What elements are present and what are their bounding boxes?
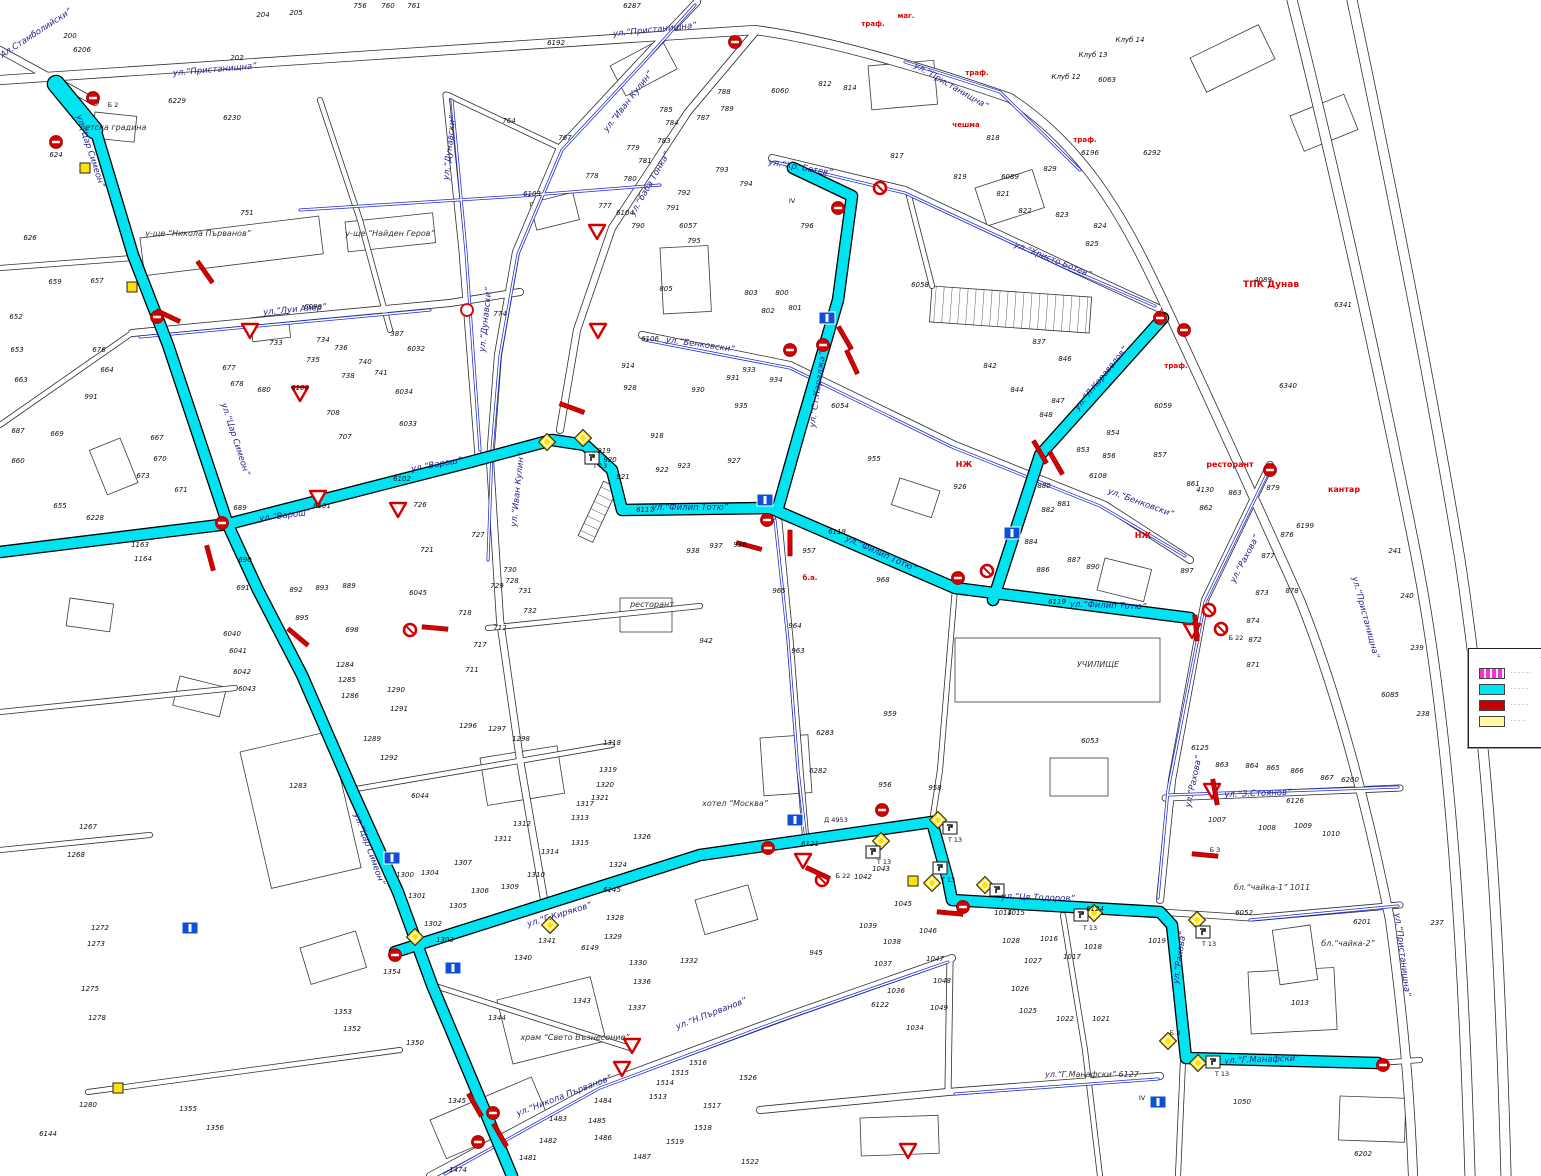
parcel-number: 1314 [541,848,559,856]
parcel-number: 919 [597,447,611,455]
sign-caption: Т 13 [940,876,955,884]
parcel-number: 652 [9,313,23,321]
parcel-number: 968 [876,576,890,584]
parcel-number: 780 [623,175,637,183]
parcel-number: 4130 [1196,486,1214,494]
parcel-number: 6192 [547,39,565,47]
parcel-number: 1481 [519,1154,537,1162]
parcel-number: 880 [1037,482,1051,490]
parcel-number: 6054 [831,402,849,410]
parcel-number: 893 [315,584,328,592]
no-stopping-sign-icon [874,182,886,194]
sign-caption: Б 2 [108,101,119,109]
parcel-number: 6052 [1235,909,1253,917]
parcel-number: 1526 [739,1074,757,1082]
parcel-number: 882 [1041,506,1055,514]
parcel-number: 6287 [623,2,641,10]
parcel-number: 200 [63,32,77,40]
poi-label-red: б.а. [803,574,818,582]
parcel-number: 756 [353,2,367,10]
parcel-number: 1017 [1063,953,1081,961]
poi-label-red: кантар [1328,485,1360,494]
parcel-number: 956 [878,781,892,789]
sign-caption: Т 13 [1214,1070,1229,1078]
parcel-number: 1028 [1002,937,1020,945]
parcel-number: 1337 [628,1004,646,1012]
parcel-number: 678 [230,380,244,388]
parcel-number: 671 [174,486,187,494]
parcel-number: 942 [699,637,713,645]
parcel-number: 717 [473,641,487,649]
parcel-number: 991 [84,393,97,401]
legend-item-label: ······· [1511,702,1529,708]
parcel-number: 886 [1036,566,1050,574]
parcel-number: 847 [1051,397,1065,405]
yield-sign-icon [795,854,811,868]
parcel-number: 761 [407,2,420,10]
parcel-number: 1350 [406,1039,424,1047]
legend-item-label: ······· [1511,686,1529,692]
parcel-number: 821 [996,190,1009,198]
parcel-number: 6144 [39,1130,57,1138]
parcel-number: 928 [623,384,637,392]
parcel-number: 6108 [1089,472,1107,480]
parcel-number: 6122 [871,1001,889,1009]
parcel-number: 6229 [168,97,186,105]
parcel-number: 726 [413,501,427,509]
parcel-number: 238 [1416,710,1430,718]
parcel-number: 819 [953,173,967,181]
parcel-number: 660 [11,457,25,465]
parcel-number: 890 [1086,563,1100,571]
parcel-number: 237 [1430,919,1444,927]
info-sign-icon [787,814,803,826]
yield-sign-icon [390,503,406,517]
parcel-number: 795 [687,237,701,245]
parcel-number: 1516 [689,1059,707,1067]
poi-label-red: чешма [952,121,980,129]
poi-label-red: траф. [965,69,988,77]
area-label: ул.“Г.Манафски” 6127 [1044,1070,1140,1079]
parcel-number: 1043 [872,865,890,873]
parcel-number: 664 [100,366,113,374]
parcel-number: 6230 [223,114,241,122]
area-label: УЧИЛИЩЕ [1077,660,1120,669]
parcel-number: 778 [585,172,599,180]
parcel-number: 663 [14,376,27,384]
parcel-number: 848 [1039,411,1053,419]
parcel-number: 1163 [131,541,149,549]
parcel-number: 718 [458,609,472,617]
sign-caption: Т 13 [592,462,607,470]
no-entry-sign-icon [472,1136,485,1149]
parcel-number: 6089 [1001,173,1019,181]
legend-item-cyan: ······· [1479,681,1541,697]
parcel-number: 1515 [671,1069,689,1077]
parcel-number: 1285 [338,676,356,684]
parcel-number: 1326 [633,833,651,841]
parcel-number: 872 [1248,636,1262,644]
parcel-number: 6102 [393,475,411,483]
parcel-number: 774 [493,310,506,318]
parcel-number: 963 [791,647,804,655]
parcel-number: 1021 [1092,1015,1110,1023]
parcel-number: 6053 [1081,737,1099,745]
legend-swatch-pale-yellow-icon [1479,716,1505,727]
parcel-number: 781 [638,157,651,165]
parcel-number: 957 [802,547,816,555]
street-name-label: ул.“Н.Първанов” [674,996,749,1033]
parcel-number: 1513 [649,1093,667,1101]
no-stopping-sign-icon [1215,623,1227,635]
no-entry-sign-icon [729,36,742,49]
parcel-number: 1310 [527,871,545,879]
parcel-number: 6202 [1354,1150,1372,1158]
parcel-number: 1482 [539,1137,557,1145]
parcel-number: 825 [1085,240,1099,248]
parcel-number: 1025 [1019,1007,1037,1015]
parcel-number: 792 [677,189,691,197]
parcel-number: 873 [1255,589,1268,597]
parcel-number: 931 [726,374,739,382]
roadblock-bar-icon [788,530,792,556]
legend-item-magenta-striped: ········ [1479,665,1541,681]
parcel-number: 205 [289,9,303,17]
sign-caption: Б 22 [836,872,851,880]
parcel-number: 824 [1093,222,1106,230]
parcel-number: 6063 [1098,76,1116,84]
parcel-number: 6340 [1279,382,1297,390]
parcel-number: 1319 [599,766,617,774]
legend-items: ···························· [1479,665,1541,729]
street-name-label: ул.“Филип Тотю” [1069,600,1147,613]
poi-label-red: НЖ [1135,531,1152,540]
parcel-number: 935 [734,402,748,410]
parcel-number: 6045 [409,589,427,597]
parcel-number: 1483 [549,1115,567,1123]
parcel-number: 1302 [424,920,442,928]
parcel-number: 1484 [594,1097,612,1105]
sign-caption: Т 13 [876,858,891,866]
sign-caption: IV [1139,1094,1146,1102]
parcel-number: 1045 [894,900,912,908]
parcel-number: 764 [502,117,515,125]
parcel-number: 1353 [334,1008,352,1016]
parcel-number: 955 [867,455,881,463]
parcel-number: 6145 [603,886,621,894]
parcel-number: 878 [1285,587,1299,595]
parcel-number: 1487 [633,1153,651,1161]
parcel-number: 934 [769,376,782,384]
area-label: хотел “Москва” [701,799,769,808]
parcel-number: 867 [1320,774,1334,782]
parcel-number: 874 [1246,617,1259,625]
parcel-number: 1303 [436,936,454,944]
area-label: храм “Свето Възнесение” [519,1033,630,1042]
parcel-number: 732 [523,607,537,615]
parcel-number: 922 [655,466,669,474]
parcel-number: 1518 [694,1124,712,1132]
parcel-number: 1016 [1040,935,1058,943]
yield-sign-icon [590,324,606,338]
parcel-number: 945 [809,949,823,957]
street-name-label: ул.“Л.Каравелов” [1072,345,1130,414]
parcel-number: Клуб 12 [1051,73,1081,81]
parcel-number: 897 [1180,567,1194,575]
parcel-number: 751 [240,209,253,217]
sign-caption: IV [789,197,796,205]
parcel-number: 1352 [343,1025,361,1033]
parcel-number: 1296 [459,722,477,730]
parcel-number: 1318 [603,739,621,747]
parcel-number: 673 [136,472,149,480]
parcel-number: 1272 [91,924,109,932]
priority-road-sign-icon [924,875,941,892]
legend-swatch-cyan-icon [1479,684,1505,695]
parcel-number: 877 [1261,552,1275,560]
parcel-number: 733 [269,339,282,347]
parcel-number: 6341 [1334,301,1352,309]
parcel-number: 837 [1032,338,1046,346]
parcel-number: 667 [150,434,164,442]
area-label: бл.“чайка-1” 1011 [1234,883,1310,892]
parcel-number: 923 [677,462,690,470]
parcel-number: 1284 [336,661,354,669]
yellow-square-sign-icon [113,1083,123,1093]
parcel-number: 760 [381,2,395,10]
parcel-number: 6034 [395,388,413,396]
no-entry-sign-icon [832,202,845,215]
t13-sign-icon [1196,926,1210,938]
ring-sign-icon [461,304,473,316]
parcel-number: 1008 [1258,824,1276,832]
parcel-number: 1329 [604,933,622,941]
parcel-number: 964 [788,622,801,630]
info-sign-icon [182,922,198,934]
no-entry-sign-icon [1178,324,1191,337]
no-stopping-sign-icon [404,624,416,636]
parcel-number: 805 [659,285,673,293]
no-entry-sign-icon [87,92,100,105]
no-entry-sign-icon [487,1107,500,1120]
parcel-number: 802 [761,307,775,315]
area-label: детска градина [79,123,147,132]
parcel-number: 889 [342,582,356,590]
poi-label-red: траф. [1164,362,1187,370]
parcel-number: 690 [238,556,252,564]
parcel-number: 959 [883,710,897,718]
parcel-number: 6040 [223,630,241,638]
parcel-number: 657 [90,277,104,285]
map-stage: 2002042052026206623062296247517567607616… [0,0,1541,1176]
parcel-number: 857 [1153,451,1167,459]
parcel-number: 1026 [1011,985,1029,993]
area-label: у-ще “Никола Първанов” [144,229,251,238]
t13-sign-icon [1206,1056,1220,1068]
sign-caption: Д 4953 [824,816,848,824]
parcel-number: 1330 [629,959,647,967]
no-entry-sign-icon [1154,312,1167,325]
street-name-label: ул.“Иван Кулин” [509,452,527,529]
parcel-number: 6149 [581,944,599,952]
parcel-number: 729 [490,582,504,590]
street-name-label: ул.“З.Стоянов” [1223,788,1292,800]
parcel-number: 698 [345,626,359,634]
no-entry-sign-icon [761,514,774,527]
info-sign-icon [1004,527,1020,539]
parcel-number: 1332 [680,957,698,965]
parcel-number: 1038 [883,938,901,946]
parcel-number: 1034 [906,1024,924,1032]
parcel-number: 794 [739,180,752,188]
parcel-number: Клуб 13 [1078,51,1107,59]
parcel-number: 6058 [911,281,929,289]
parcel-number: 721 [420,546,433,554]
parcel-number: 876 [1280,531,1294,539]
parcel-number: 853 [1076,446,1089,454]
parcel-number: 6042 [233,668,251,676]
parcel-number: 1036 [887,987,905,995]
roadblock-bar-icon [845,349,860,374]
yield-sign-icon [589,225,605,239]
parcel-number: 783 [657,137,670,145]
parcel-number: 6043 [238,685,256,693]
parcel-number: 239 [1410,644,1424,652]
parcel-number: 677 [222,364,236,372]
parcel-number: 670 [153,455,167,463]
parcel-number: 6119 [1048,598,1066,606]
sign-caption: Б 3 [1210,846,1221,854]
parcel-number: 879 [1266,484,1280,492]
parcel-number: 881 [1057,500,1070,508]
parcel-number: 895 [295,614,309,622]
parcel-number: 787 [696,114,710,122]
parcel-number: 1037 [874,960,892,968]
parcel-number: 1039 [859,922,877,930]
parcel-number: 6103 [523,190,541,198]
parcel-number: 1273 [87,940,105,948]
parcel-number: 818 [986,134,1000,142]
roadblock-bar-icon [205,545,216,571]
parcel-number: 241 [1388,547,1401,555]
parcel-number: 1341 [538,937,556,945]
yellow-square-sign-icon [127,282,137,292]
parcel-number: 1268 [67,851,85,859]
parcel-number: 803 [744,289,757,297]
parcel-number: 914 [621,362,634,370]
no-entry-sign-icon [762,842,775,855]
parcel-number: 1345 [448,1097,466,1105]
sign-caption: Т 13 [1201,940,1216,948]
t13-sign-icon [933,862,947,874]
parcel-number: 6125 [1191,744,1209,752]
parcel-number: 1297 [488,725,506,733]
parcel-number: 1300 [396,871,414,879]
parcel-number: 1486 [594,1134,612,1142]
parcel-number: 6126 [1286,797,1304,805]
parcel-number: 892 [289,586,303,594]
parcel-number: 1306 [471,887,489,895]
parcel-number: 936 [733,541,747,549]
parcel-number: 1313 [571,814,589,822]
parcel-number: 1286 [341,692,359,700]
street-name-label: ул.“Филип Тотю” [651,503,729,513]
legend-item-label: ········ [1511,670,1532,676]
area-label: бл.“чайка-2” [1321,939,1375,948]
parcel-number: 1328 [606,914,624,922]
parcel-number: 6118 [828,528,846,536]
parcel-number: 817 [890,152,904,160]
parcel-number: 1275 [81,985,99,993]
parcel-number: 777 [598,202,612,210]
parcel-number: 788 [717,88,731,96]
map-canvas[interactable]: 2002042052026206623062296247517567607616… [0,0,1541,1176]
parcel-number: 1304 [421,869,439,877]
parcel-number: 1522 [741,1158,759,1166]
parcel-number: 727 [471,531,485,539]
parcel-number: 1050 [1233,1098,1251,1106]
parcel-number: 856 [1102,452,1116,460]
info-sign-icon [819,312,835,324]
yellow-square-sign-icon [80,163,90,173]
parcel-number: 6032 [407,345,425,353]
parcel-number: 790 [631,222,645,230]
street-name-label: ул.“Пристанищна” [1349,575,1381,660]
parcel-number: 1519 [666,1138,684,1146]
parcel-number: 1289 [363,735,381,743]
parcel-number: 6199 [1296,522,1314,530]
parcel-number: 965 [772,587,786,595]
parcel-number: 6101 [313,502,331,510]
parcel-number: 1355 [179,1105,197,1113]
parcel-number: 796 [800,222,814,230]
parcel-number: 6228 [86,514,104,522]
no-entry-sign-icon [389,949,402,962]
parcel-number: 1311 [494,835,512,843]
parcel-number: 1343 [573,997,591,1005]
sign-caption: Т 13 [947,836,962,844]
parcel-number: 708 [326,409,340,417]
street-name-label: ул.“Христо Ботев” [1012,240,1094,281]
parcel-number: 1317 [576,800,594,808]
parcel-number: 918 [650,432,664,440]
parcel-number: 6200 [1341,776,1359,784]
parcel-number: 1164 [134,555,152,563]
parcel-number: 736 [334,344,348,352]
parcel-number: 6121 [801,840,819,848]
parcel-number: 6196 [1081,149,1099,157]
parcel-number: 6060 [771,87,789,95]
parcel-number: 846 [1058,355,1072,363]
parcel-number: 793 [715,166,728,174]
parcel-number: 1309 [501,883,519,891]
parcel-number: 784 [665,119,678,127]
street-name-label: ул.“Цар Симеон” [218,401,251,478]
info-sign-icon [384,852,400,864]
t13-sign-icon [943,822,957,834]
parcel-number: 6033 [399,420,417,428]
parcel-number: 734 [316,336,329,344]
parcel-number: 1046 [919,927,937,935]
parcel-number: 958 [928,784,942,792]
parcel-number: 1007 [1208,816,1226,824]
roadblock-bar-icon [422,625,448,632]
parcel-number: 676 [92,346,106,354]
parcel-number: 6057 [679,222,697,230]
parcel-number: 626 [23,234,37,242]
parcel-number: 767 [558,134,572,142]
parcel-number: 930 [691,386,705,394]
